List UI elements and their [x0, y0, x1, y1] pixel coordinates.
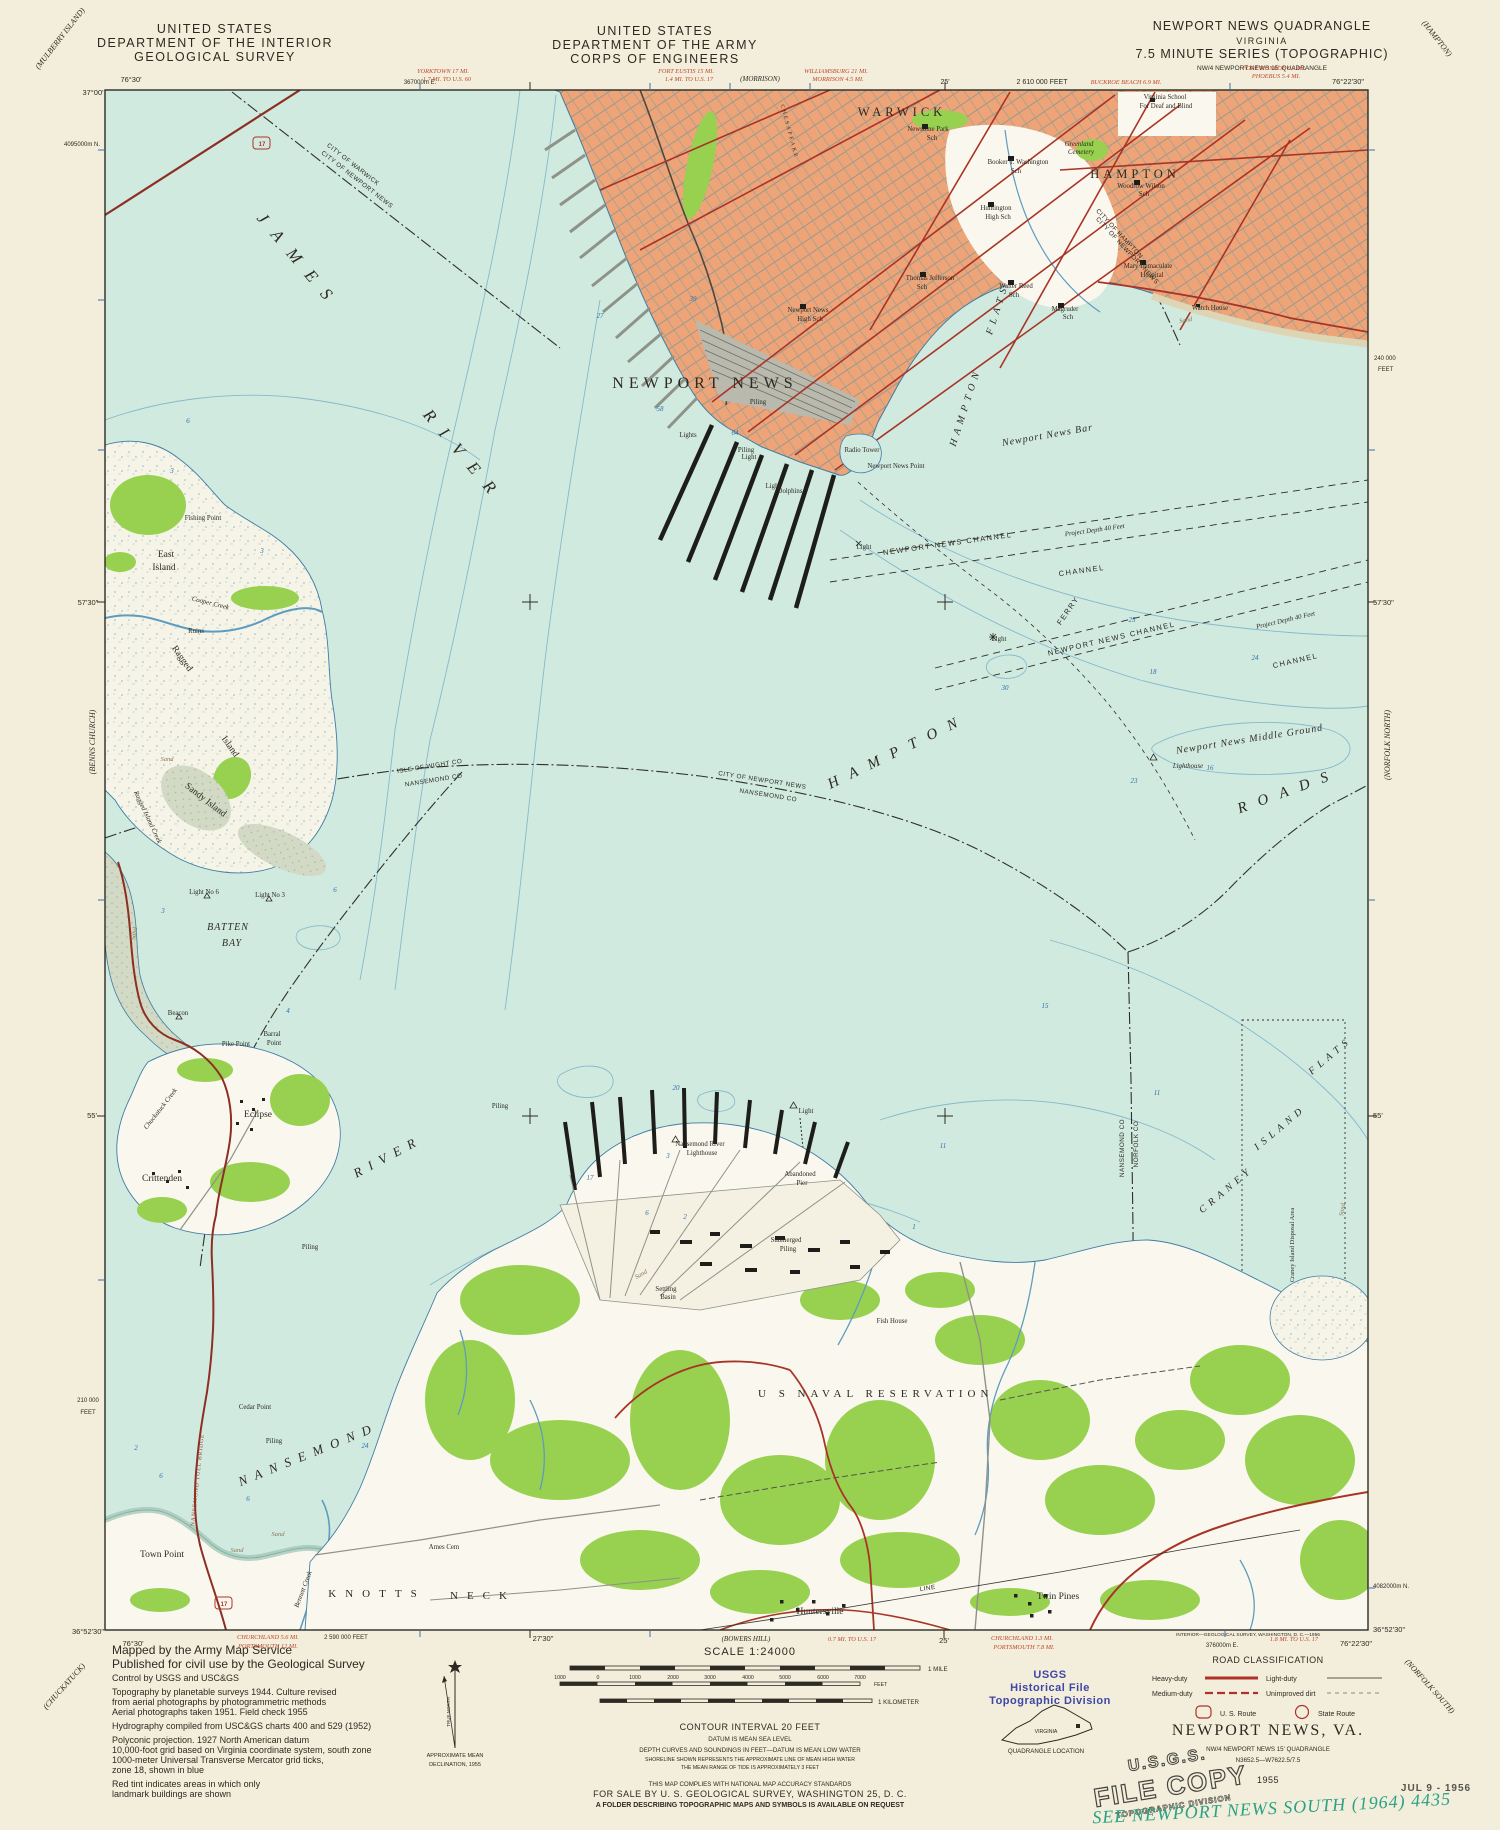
map-text-label: Unimproved dirt	[1266, 1691, 1315, 1698]
map-text-label: 27'30"	[533, 1634, 554, 1643]
map-text-label: Sch	[1139, 191, 1150, 198]
road-class-title: ROAD CLASSIFICATION	[1212, 1655, 1323, 1665]
map-text-label: THE MEAN RANGE OF TIDE IS APPROXIMATELY …	[681, 1765, 820, 1771]
map-text-label: 4095000m N.	[64, 142, 100, 148]
map-text-label: 23	[1131, 777, 1139, 785]
place-crittenden: Crittenden	[142, 1174, 182, 1184]
map-text-label: 36°52'30"	[1373, 1625, 1405, 1634]
place-town-point: Town Point	[140, 1550, 184, 1560]
map-text-label: Piling	[750, 399, 767, 406]
map-text-label: 7000	[854, 1675, 866, 1681]
map-text-label: 24	[362, 1442, 370, 1450]
map-text-label: 3	[169, 467, 174, 475]
map-text-label: WILLIAMSBURG 21 MI.	[804, 68, 868, 75]
map-text-label: KNOTTS	[328, 1588, 425, 1600]
map-text-label: DEPTH CURVES AND SOUNDINGS IN FEET—DATUM…	[639, 1747, 861, 1754]
map-text-label: NANSEMOND CO	[1119, 1119, 1126, 1177]
map-text-label: State Route	[1318, 1711, 1355, 1718]
map-text-label: 55'	[87, 1111, 97, 1120]
map-text-label: 4	[286, 1007, 290, 1015]
map-text-label: 1000	[629, 1675, 641, 1681]
map-text-label: 76°30'	[120, 75, 142, 84]
map-text-label: Sand	[272, 1531, 286, 1538]
place-huntersville: Huntersville	[797, 1607, 844, 1617]
map-text-label: Beacon	[168, 1010, 189, 1017]
map-text-label: Pike Point	[222, 1041, 250, 1048]
map-text-label: Sch	[927, 135, 938, 142]
map-text-label: Abandoned	[784, 1171, 816, 1178]
map-text-label: Piling	[266, 1438, 283, 1445]
map-text-label: Light	[992, 636, 1007, 643]
map-text-label: 57'30"	[78, 598, 99, 607]
map-text-label: Virginia School	[1144, 94, 1187, 101]
agency-left-line1: UNITED STATES	[157, 22, 273, 36]
map-text-label: 240 000	[1374, 356, 1396, 362]
map-text-label: 1000-meter Universal Transverse Mercator…	[112, 1755, 324, 1765]
map-text-label: Light	[766, 483, 781, 490]
map-text-label: Point	[267, 1040, 281, 1047]
map-text-label: from aerial photographs by photogrammetr…	[112, 1697, 327, 1707]
place-eclipse: Eclipse	[244, 1110, 272, 1120]
sheet-year: 1955	[1257, 1775, 1279, 1785]
map-text-label: Thomas Jefferson	[906, 275, 955, 282]
map-text-label: Settling	[655, 1286, 677, 1293]
map-text-label: 36°52'30"	[72, 1627, 104, 1636]
map-text-label: Medium-duty	[1152, 1691, 1193, 1698]
city-label-warwick: WARWICK	[858, 105, 946, 119]
map-text-label: zone 18, shown in blue	[112, 1765, 204, 1775]
map-text-label: 6	[159, 1472, 163, 1480]
quad-series: 7.5 MINUTE SERIES (TOPOGRAPHIC)	[1135, 47, 1388, 61]
map-text-label: 6000	[817, 1675, 829, 1681]
map-text-label: 2000	[667, 1675, 679, 1681]
map-text-label: Woodrow Wilson	[1117, 183, 1165, 190]
map-text-label: BATTEN	[207, 922, 249, 933]
map-text-label: Piling	[738, 447, 755, 454]
map-text-label: 11	[940, 1142, 946, 1150]
map-text-label: DECLINATION, 1955	[429, 1762, 481, 1768]
map-text-label: 17	[259, 142, 266, 148]
map-text-label: Island	[152, 563, 175, 573]
map-text-label: Newport News	[788, 307, 829, 314]
map-text-label: 1000	[554, 1675, 566, 1681]
map-text-label: FEET	[874, 1682, 888, 1688]
map-text-label: Mapped by the Army Map Service	[112, 1643, 292, 1657]
map-text-label: FORT EUSTIS 15 MI.	[657, 68, 714, 75]
map-text-label: 64	[732, 429, 740, 437]
map-text-label: (MORRISON)	[740, 75, 780, 83]
map-text-label: 17	[221, 1602, 228, 1608]
map-text-label: 0.7 MI. TO U.S. 17	[828, 1636, 877, 1643]
agency-center-line3: CORPS OF ENGINEERS	[570, 52, 739, 66]
map-text-label: A FOLDER DESCRIBING TOPOGRAPHIC MAPS AND…	[596, 1802, 905, 1809]
map-text-label: 15	[1042, 1002, 1050, 1010]
map-text-label: Sch	[917, 284, 928, 291]
map-text-label: NW/4 NEWPORT NEWS 15' QUADRANGLE	[1206, 1746, 1330, 1753]
map-text-label: Lights	[679, 432, 697, 439]
map-text-label: 57'30"	[1373, 598, 1394, 607]
map-text-label: Lighthouse	[687, 1150, 718, 1157]
map-text-label: Light No 6	[189, 889, 219, 896]
map-text-label: Barral	[264, 1031, 281, 1038]
map-text-label: Pier	[797, 1180, 809, 1187]
map-text-label: 3	[259, 547, 264, 555]
map-text-label: Topography by planetable surveys 1944. C…	[112, 1687, 337, 1697]
map-text-label: FORT MONROE 6.5 MI.	[1241, 65, 1305, 72]
blue-stamp-line1: USGS	[1033, 1669, 1066, 1681]
map-text-label: Newport News Point	[867, 463, 924, 470]
map-text-label: Cemetery	[1068, 149, 1095, 156]
map-text-label: 367000m E.	[404, 80, 437, 86]
map-text-label: Light	[857, 544, 872, 551]
map-text-label: 6	[246, 1495, 250, 1503]
map-text-label: Hydrography compiled from USC&GS charts …	[112, 1721, 371, 1731]
map-text-label: 18	[1150, 668, 1158, 676]
map-text-label: 3000	[704, 1675, 716, 1681]
agency-center-line1: UNITED STATES	[597, 24, 713, 38]
map-text-label: 4000	[742, 1675, 754, 1681]
map-text-label: (BOWERS HILL)	[722, 1635, 771, 1643]
map-text-label: 6	[186, 417, 190, 425]
map-text-label: MORRISON 4.5 MI.	[811, 76, 863, 83]
map-text-label: Lighthouse	[1172, 763, 1203, 770]
map-text-label: Nansemond River	[675, 1141, 725, 1148]
map-text-label: Light No 3	[255, 892, 285, 899]
map-text-label: 6	[645, 1209, 649, 1217]
map-text-label: Light	[799, 1108, 814, 1115]
map-text-label: 2	[134, 1444, 138, 1452]
map-text-label: 76°22'30"	[1332, 77, 1364, 86]
map-text-label: SHORELINE SHOWN REPRESENTS THE APPROXIMA…	[645, 1757, 855, 1763]
map-text-label: QUADRANGLE LOCATION	[1008, 1748, 1084, 1755]
map-text-label: Watch House	[1192, 305, 1228, 312]
quad-state: VIRGINIA	[1236, 36, 1288, 46]
map-text-label: Sch	[1011, 168, 1022, 175]
map-text-label: 3	[665, 1152, 670, 1160]
map-text-label: 1 MILE	[928, 1666, 948, 1673]
map-text-label: Cedar Point	[239, 1404, 271, 1411]
map-text-label: 10,000-foot grid based on Virginia coord…	[112, 1745, 372, 1755]
map-text-label: landmark buildings are shown	[112, 1789, 231, 1799]
map-text-label: Sand	[231, 1547, 245, 1554]
map-text-label: East	[158, 550, 175, 560]
map-text-label: 210 000	[77, 1398, 99, 1404]
map-text-label: Piling	[492, 1103, 509, 1110]
map-text-label: APPROXIMATE MEAN	[427, 1753, 484, 1759]
naval-reservation-label: U S NAVAL RESERVATION	[758, 1388, 993, 1400]
scale-text: SCALE 1:24000	[704, 1646, 796, 1658]
map-text-label: (BENNS CHURCH)	[88, 709, 97, 774]
map-sheet: UNITED STATESDEPARTMENT OF THE INTERIORG…	[0, 0, 1500, 1830]
map-text-label: Huntington	[981, 205, 1013, 212]
map-text-label: 58	[657, 405, 665, 413]
map-text-label: CHURCHLAND 5.6 MI.	[237, 1634, 299, 1641]
map-text-label: 2 590 000 FEET	[324, 1635, 368, 1641]
map-text-label: Dolphins	[778, 488, 803, 495]
map-text-label: 17	[587, 1174, 595, 1182]
map-text-label: 24	[1252, 654, 1260, 662]
map-text-label: NECK	[450, 1590, 516, 1602]
blue-stamp-line2: Historical File	[1010, 1682, 1090, 1694]
map-text-label: Sand	[161, 756, 175, 763]
blue-stamp-line3: Topographic Division	[989, 1695, 1111, 1707]
map-text-label: Light	[742, 454, 757, 461]
map-text-label: 6	[333, 886, 337, 894]
map-text-label: 1.4 MI. TO U.S. 17	[665, 76, 714, 83]
map-text-label: 1	[912, 1223, 916, 1231]
map-text-label: 30	[1001, 684, 1010, 692]
map-text-label: 27	[597, 312, 605, 320]
map-text-label: 2	[683, 1213, 687, 1221]
map-text-label: Magruder	[1052, 306, 1080, 313]
map-text-label: U. S. Route	[1220, 1711, 1256, 1718]
map-text-label: 25'	[940, 79, 949, 86]
map-text-label: Control by USGS and USC&GS	[112, 1673, 239, 1683]
map-text-label: TRUE NORTH	[446, 1697, 451, 1726]
map-text-label: Ames Cem	[429, 1544, 460, 1551]
map-text-label: 3	[160, 907, 165, 915]
city-label-newport-news: NEWPORT NEWS	[612, 375, 797, 392]
map-text-label: BAY	[222, 938, 243, 949]
agency-left-line3: GEOLOGICAL SURVEY	[134, 50, 296, 64]
map-text-label: Sch	[1063, 314, 1074, 321]
map-text-label: 5000	[779, 1675, 791, 1681]
map-text-label: Light-duty	[1266, 1676, 1297, 1683]
map-text-label: (NORFOLK NORTH)	[1383, 710, 1392, 780]
quad-title: NEWPORT NEWS QUADRANGLE	[1153, 19, 1371, 33]
map-text-label: Red tint indicates areas in which only	[112, 1779, 261, 1789]
map-text-label: Heavy-duty	[1152, 1676, 1188, 1683]
map-text-label: CONTOUR INTERVAL 20 FEET	[680, 1722, 821, 1732]
map-text-label: THIS MAP COMPLIES WITH NATIONAL MAP ACCU…	[649, 1781, 852, 1788]
map-text-label: Ruins	[188, 628, 204, 635]
map-text-label: Sch	[1009, 292, 1020, 299]
map-text-label: 20	[673, 1084, 681, 1092]
map-text-label: 25'	[939, 1636, 949, 1645]
map-text-label: 39	[689, 295, 698, 303]
place-twin-pines: Twin Pines	[1037, 1592, 1080, 1602]
craney-island-marsh	[1270, 1276, 1374, 1360]
map-text-label: Fish House	[877, 1318, 908, 1325]
map-text-label: 0	[597, 1675, 600, 1681]
agency-center-line2: DEPARTMENT OF THE ARMY	[552, 38, 758, 52]
map-text-label: 37°00'	[82, 88, 104, 97]
map-text-label: High Sch	[797, 316, 823, 323]
map-text-label: 1.8 MI. TO U.S. 17	[1270, 1636, 1319, 1643]
quadrangle-location-dot	[1076, 1724, 1080, 1728]
map-text-label: PORTSMOUTH 7.8 MI.	[992, 1644, 1054, 1651]
map-text-label: 376000m E.	[1206, 1643, 1239, 1649]
map-text-label: 11	[1154, 1089, 1160, 1097]
map-text-label: YORKTOWN 17 MI.	[417, 68, 469, 75]
map-text-label: Craney Island Disposal Area	[1289, 1208, 1296, 1283]
map-text-label: FEET	[80, 1410, 96, 1416]
map-text-label: 2 610 000 FEET	[1017, 79, 1069, 86]
map-text-label: VIRGINIA	[1035, 1729, 1058, 1735]
map-text-label: FEET	[1378, 367, 1394, 373]
map-text-label: 4082000m N.	[1373, 1584, 1409, 1590]
map-text-label: Published for civil use by the Geologica…	[112, 1657, 365, 1671]
map-text-label: Aerial photographs taken 1951. Field che…	[112, 1707, 308, 1717]
map-text-label: For Deaf and Blind	[1140, 103, 1193, 110]
map-text-label: CHURCHLAND 1.3 MI.	[991, 1635, 1053, 1642]
map-text-label: Fishing Point	[185, 515, 222, 522]
map-canvas: UNITED STATESDEPARTMENT OF THE INTERIORG…	[0, 0, 1500, 1830]
map-text-label: Piling	[302, 1244, 319, 1251]
map-text-label: PHOEBUS 5.4 MI.	[1251, 73, 1300, 80]
map-text-label: Piling	[780, 1246, 797, 1253]
map-text-label: BUCKROE BEACH 6.9 MI.	[1091, 79, 1162, 86]
map-text-label: NORFOLK CO	[1133, 1121, 1140, 1168]
map-text-label: FOR SALE BY U. S. GEOLOGICAL SURVEY, WAS…	[593, 1789, 907, 1799]
map-text-label: Submerged	[771, 1237, 802, 1244]
map-text-label: Booker T. Washington	[988, 159, 1049, 166]
map-text-label: Newsome Park	[907, 126, 949, 133]
map-text-label: 55'	[1373, 1111, 1383, 1120]
map-text-label: 16	[1207, 764, 1215, 772]
agency-left-line2: DEPARTMENT OF THE INTERIOR	[97, 36, 333, 50]
map-text-label: Polyconic projection. 1927 North America…	[112, 1735, 309, 1745]
map-text-label: 25	[1129, 616, 1137, 624]
city-label-hampton: HAMPTON	[1090, 167, 1180, 181]
map-text-label: High Sch	[985, 214, 1011, 221]
map-text-label: DATUM IS MEAN SEA LEVEL	[708, 1736, 792, 1743]
map-text-label: Radio Tower	[844, 447, 880, 454]
map-text-label: Greenland	[1065, 141, 1094, 148]
map-text-label: Basin	[660, 1294, 676, 1301]
sheet-title: NEWPORT NEWS, VA.	[1172, 1722, 1364, 1739]
map-text-label: 76°22'30"	[1340, 1639, 1372, 1648]
map-text-label: 1 KILOMETER	[878, 1699, 919, 1706]
